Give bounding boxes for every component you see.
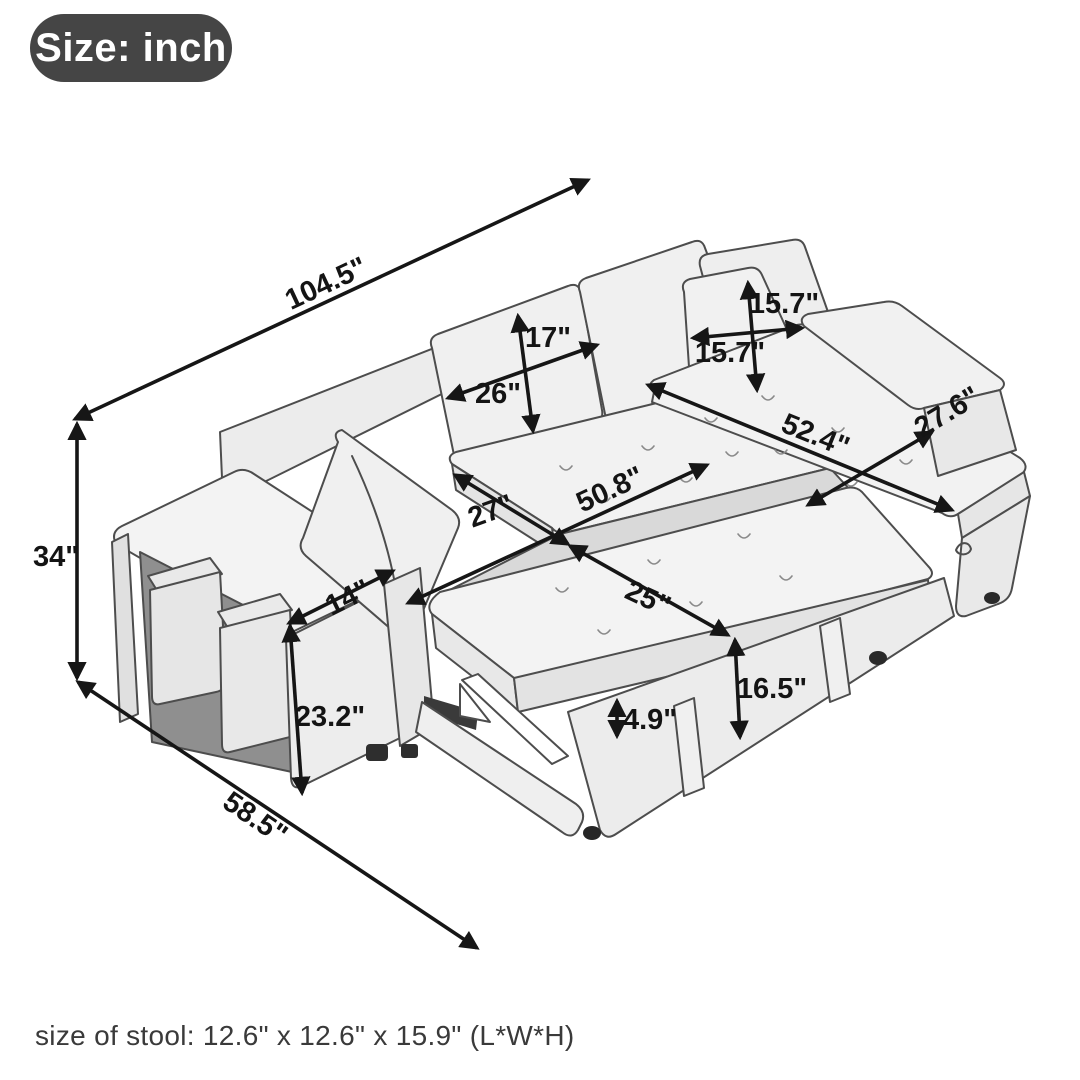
- dim-label-arm-height: 23.2": [295, 701, 365, 733]
- sofa-dimension-diagram: Size: inch: [0, 0, 1080, 1080]
- stool-back-front: [150, 572, 226, 704]
- dim-label-pillow-width: 15.7": [695, 337, 765, 369]
- dim-label-seat-floor-height: 16.5": [737, 673, 807, 705]
- chaise-foot: [984, 592, 1000, 604]
- dim-label-total-width: 104.5": [280, 251, 372, 316]
- diagram-svg: 104.5" 34" 58.5" 17" 26" 15.7" 15.7" 52.…: [0, 0, 1080, 1080]
- dim-label-back-cushion-width: 26": [475, 378, 521, 410]
- frame-caster: [583, 826, 601, 840]
- pullout-frame-rail: [416, 702, 583, 836]
- bed-caster-right: [869, 651, 887, 665]
- left-arm-foot: [366, 744, 388, 761]
- dim-label-total-depth: 58.5": [217, 786, 293, 852]
- dim-label-mattress-thickness: 4.9": [623, 704, 677, 736]
- dim-label-total-height: 34": [33, 541, 79, 573]
- dim-label-back-cushion-height: 17": [525, 322, 571, 354]
- seat-frame-foot: [401, 744, 418, 758]
- left-arm-side-panel: [112, 534, 138, 722]
- stool-size-note: size of stool: 12.6" x 12.6" x 15.9" (L*…: [35, 1020, 574, 1052]
- stool-front-front: [220, 610, 296, 752]
- dim-label-pillow-height: 15.7": [749, 288, 819, 320]
